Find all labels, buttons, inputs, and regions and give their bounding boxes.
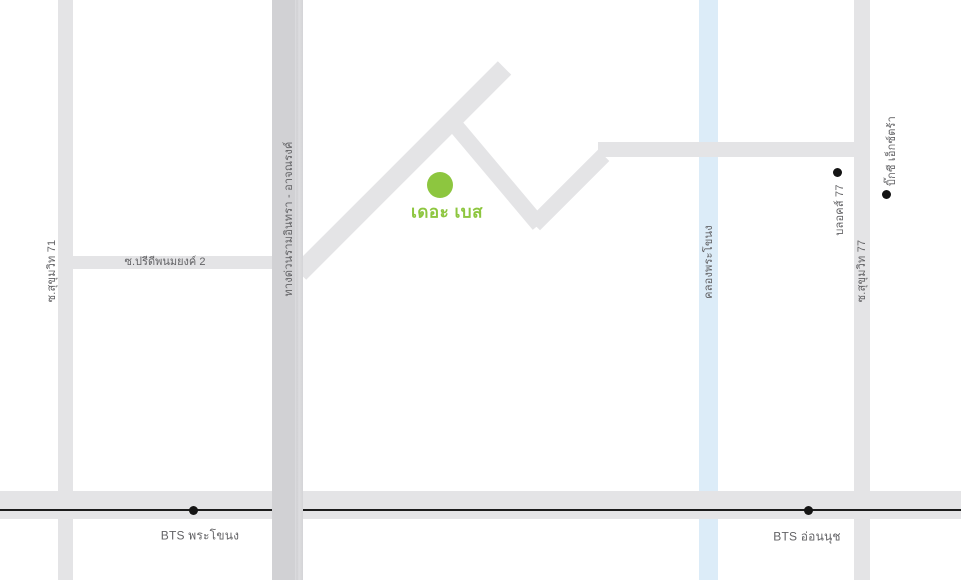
poi-dot-blocs77: [833, 168, 842, 177]
label-soi-sukhumvit-77: ซ.สุขุมวิท 77: [852, 240, 870, 303]
label-soi-pridi-2: ซ.ปรีดีพนมยงค์ 2: [58, 255, 272, 269]
bts-station-dot-phra-khanong: [189, 506, 198, 515]
road-upper-horizontal: [598, 142, 870, 157]
road-sukhumvit-main: [0, 491, 961, 519]
bts-rail-line: [0, 509, 961, 511]
label-bigc-extra: บิ๊กซี เอ็กซ์ตร้า: [882, 116, 900, 186]
road-diagonal-main: [292, 61, 510, 279]
road-diagonal-ascending: [529, 150, 610, 231]
label-bts-on-nut: BTS อ่อนนุช: [773, 528, 840, 547]
label-expressway: ทางด่วนรามอินทรา - อาจณรงค์: [279, 141, 297, 296]
label-blocs77: บลอคส์ 77: [830, 184, 848, 235]
label-soi-sukhumvit-71: ซ.สุขุมวิท 71: [42, 240, 60, 303]
project-marker-label: เดอะ เบส: [411, 199, 483, 226]
project-marker-dot: [427, 172, 453, 198]
label-canal: คลองพระโขนง: [699, 225, 717, 299]
poi-dot-bigc-extra: [882, 190, 891, 199]
label-bts-phra-khanong: BTS พระโขนง: [161, 527, 239, 546]
location-map: ซ.สุขุมวิท 71 ทางด่วนรามอินทรา - อาจณรงค…: [0, 0, 961, 580]
bts-station-dot-on-nut: [804, 506, 813, 515]
